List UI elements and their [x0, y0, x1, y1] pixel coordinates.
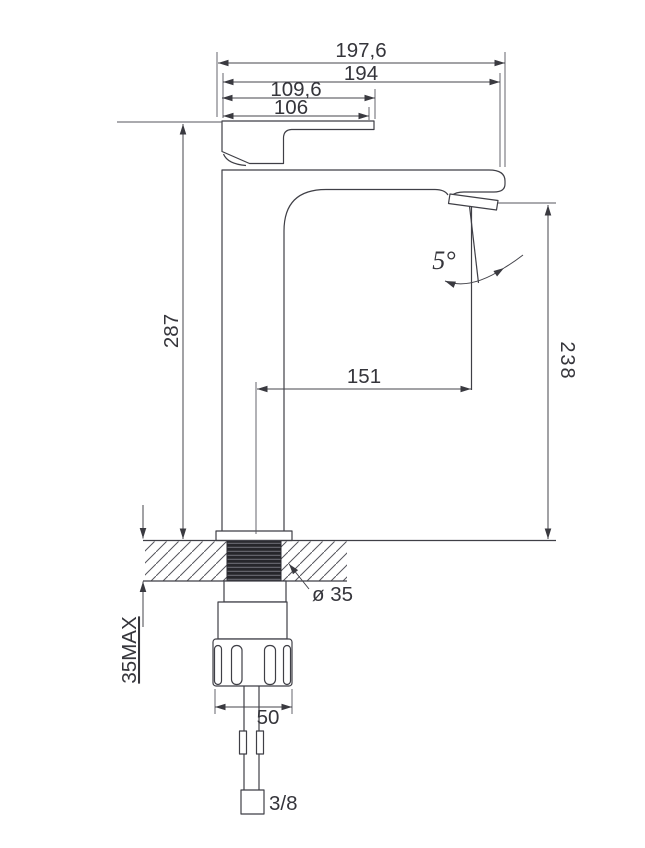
- dim-hose-thread: 3/8: [269, 792, 298, 815]
- dim-hose-thread-label: 3/8: [269, 792, 298, 815]
- dim-total-height: 287: [117, 122, 222, 539]
- handle-lever: [222, 121, 374, 164]
- nut-upper-section: [218, 602, 287, 639]
- counter-section: [143, 541, 556, 582]
- dim-nut-width: 50: [215, 689, 292, 729]
- dim-handle-length-label: 106: [274, 96, 308, 119]
- dim-hole-diameter-label: ø 35: [312, 583, 353, 606]
- dim-spout-height: 238: [498, 203, 578, 539]
- counter-hatch-left: [145, 542, 227, 581]
- dim-spout-reach: 151: [256, 365, 471, 534]
- dim-body-depth-label: 194: [344, 62, 378, 85]
- base-flange: [216, 531, 292, 541]
- faucet-technical-drawing-page: 197,6 194 109,6 106 287 238 151: [0, 0, 645, 848]
- threaded-shank: [227, 542, 281, 582]
- faucet-body-outline: [216, 121, 505, 541]
- dim-deck-thickness-label: 35MAX: [118, 616, 141, 684]
- dim-stream-angle-label: 5°: [432, 246, 455, 275]
- dim-total-height-label: 287: [160, 314, 183, 348]
- hose-coupling-tab-left: [240, 731, 247, 754]
- faucet-technical-drawing: 197,6 194 109,6 106 287 238 151: [0, 0, 645, 848]
- body-outer-contour: [222, 170, 505, 531]
- stream-angled-line: [470, 206, 479, 283]
- dim-overall-depth-label: 197,6: [335, 39, 386, 62]
- dim-nut-width-label: 50: [257, 706, 280, 729]
- hose-end-fitting: [241, 790, 264, 814]
- body-inner-contour: [284, 190, 448, 532]
- dim-deck-thickness: 35MAX: [118, 505, 143, 684]
- counter-hatch-right: [281, 542, 347, 581]
- knurled-nut: [213, 639, 292, 686]
- dim-spout-reach-label: 151: [347, 365, 381, 388]
- mounting-hardware: [213, 581, 292, 814]
- mounting-washer: [224, 581, 286, 602]
- dim-handle-length: 106: [223, 96, 369, 120]
- hose-coupling-tab-right: [257, 731, 264, 754]
- dim-spout-height-label: 238: [556, 341, 578, 380]
- aerator: [449, 194, 499, 210]
